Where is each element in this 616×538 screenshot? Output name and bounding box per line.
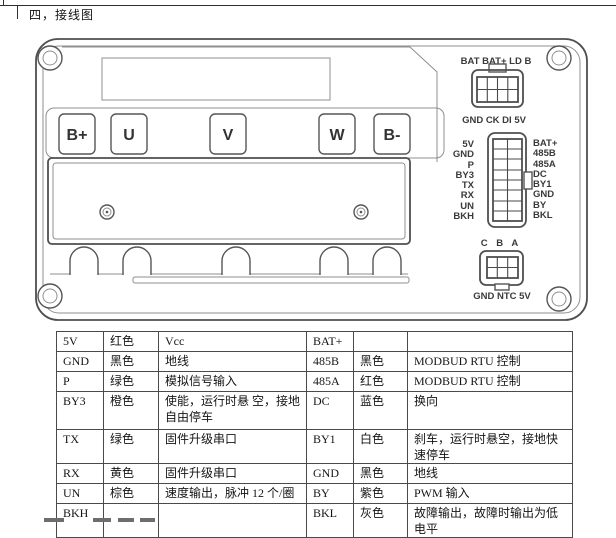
pin-cell: GND bbox=[307, 464, 354, 484]
table-row: UN 棕色 速度输出，脉冲 12 个/圈 BY 紫色 PWM 输入 bbox=[57, 484, 573, 504]
terminal-w-label: W bbox=[329, 127, 345, 144]
connector-top-lower-label: GND CK DI 5V bbox=[462, 115, 527, 126]
pin-description-table: 5V 红色 Vcc BAT+ GND 黑色 地线 485B 黑色 MODBUD … bbox=[56, 331, 573, 538]
table-row: RX 黄色 固件升级串口 GND 黑色 地线 bbox=[57, 464, 573, 484]
pin-cell: GND bbox=[57, 352, 104, 372]
pin-cell: RX bbox=[57, 464, 104, 484]
desc-cell: MODBUD RTU 控制 bbox=[408, 372, 573, 392]
connector-bottom-upper-label: C B A bbox=[481, 238, 522, 249]
table-row: BY3 橙色 使能，运行时悬 空，接地自由停车 DC 蓝色 换向 bbox=[57, 392, 573, 430]
pin-label-bkl: BKL bbox=[533, 210, 553, 221]
color-cell: 蓝色 bbox=[354, 392, 408, 430]
terminal-v-label: V bbox=[223, 127, 234, 144]
pin-label-gnd2: GND bbox=[533, 189, 554, 200]
desc-cell: 换向 bbox=[408, 392, 573, 430]
table-row: GND 黑色 地线 485B 黑色 MODBUD RTU 控制 bbox=[57, 352, 573, 372]
desc-cell: 地线 bbox=[408, 464, 573, 484]
pin-cell: UN bbox=[57, 484, 104, 504]
desc-cell: 速度输出，脉冲 12 个/圈 bbox=[159, 484, 307, 504]
connector-bottom-lower-label: GND NTC 5V bbox=[473, 291, 531, 302]
color-cell: 红色 bbox=[354, 372, 408, 392]
desc-cell: PWM 输入 bbox=[408, 484, 573, 504]
color-cell: 黄色 bbox=[104, 464, 159, 484]
pin-cell: 5V bbox=[57, 332, 104, 352]
desc-cell bbox=[408, 332, 573, 352]
desc-cell: 地线 bbox=[159, 352, 307, 372]
controller-diagram: B+ U V W B- BAT BAT+ LD B GND CK DI 5V bbox=[0, 0, 616, 330]
color-cell: 绿色 bbox=[104, 430, 159, 464]
color-cell: 橙色 bbox=[104, 392, 159, 430]
color-cell: 红色 bbox=[104, 332, 159, 352]
color-cell: 绿色 bbox=[104, 372, 159, 392]
pin-label-bkh: BKH bbox=[453, 211, 474, 222]
terminal-b-plus-label: B+ bbox=[67, 127, 88, 144]
terminal-b-minus-label: B- bbox=[384, 127, 401, 144]
desc-cell: 模拟信号输入 bbox=[159, 372, 307, 392]
color-cell bbox=[354, 332, 408, 352]
desc-cell: 固件升级串口 bbox=[159, 430, 307, 464]
pin-label-485b: 485B bbox=[533, 148, 556, 159]
terminal-u-label: U bbox=[123, 127, 135, 144]
color-cell: 黑色 bbox=[354, 464, 408, 484]
desc-cell: Vcc bbox=[159, 332, 307, 352]
pin-label-gnd: GND bbox=[453, 149, 474, 160]
desc-cell: 故障输出，故障时输出为低电平 bbox=[408, 504, 573, 538]
table-row: 5V 红色 Vcc BAT+ bbox=[57, 332, 573, 352]
desc-cell: 固件升级串口 bbox=[159, 464, 307, 484]
pin-cell: BKL bbox=[307, 504, 354, 538]
pin-cell: BY3 bbox=[57, 392, 104, 430]
pin-label-rx: RX bbox=[461, 190, 475, 201]
pin-cell: BAT+ bbox=[307, 332, 354, 352]
pin-cell: TX bbox=[57, 430, 104, 464]
color-cell: 紫色 bbox=[354, 484, 408, 504]
color-cell: 黑色 bbox=[104, 352, 159, 372]
color-cell: 棕色 bbox=[104, 484, 159, 504]
pin-cell: 485A bbox=[307, 372, 354, 392]
color-cell: 黑色 bbox=[354, 352, 408, 372]
pin-cell: BY1 bbox=[307, 430, 354, 464]
desc-cell: MODBUD RTU 控制 bbox=[408, 352, 573, 372]
desc-cell bbox=[159, 504, 307, 538]
pin-cell: P bbox=[57, 372, 104, 392]
desc-cell: 使能，运行时悬 空，接地自由停车 bbox=[159, 392, 307, 430]
pin-cell: 485B bbox=[307, 352, 354, 372]
desc-cell: 刹车，运行时悬空，接地快速停车 bbox=[408, 430, 573, 464]
pin-cell: BY bbox=[307, 484, 354, 504]
color-cell: 灰色 bbox=[354, 504, 408, 538]
color-cell: 白色 bbox=[354, 430, 408, 464]
table-row: P 绿色 模拟信号输入 485A 红色 MODBUD RTU 控制 bbox=[57, 372, 573, 392]
manual-page: { "page": { "section_title": "四，接线图" }, … bbox=[0, 0, 616, 522]
table-row: TX 绿色 固件升级串口 BY1 白色 刹车，运行时悬空，接地快速停车 bbox=[57, 430, 573, 464]
pin-cell: DC bbox=[307, 392, 354, 430]
